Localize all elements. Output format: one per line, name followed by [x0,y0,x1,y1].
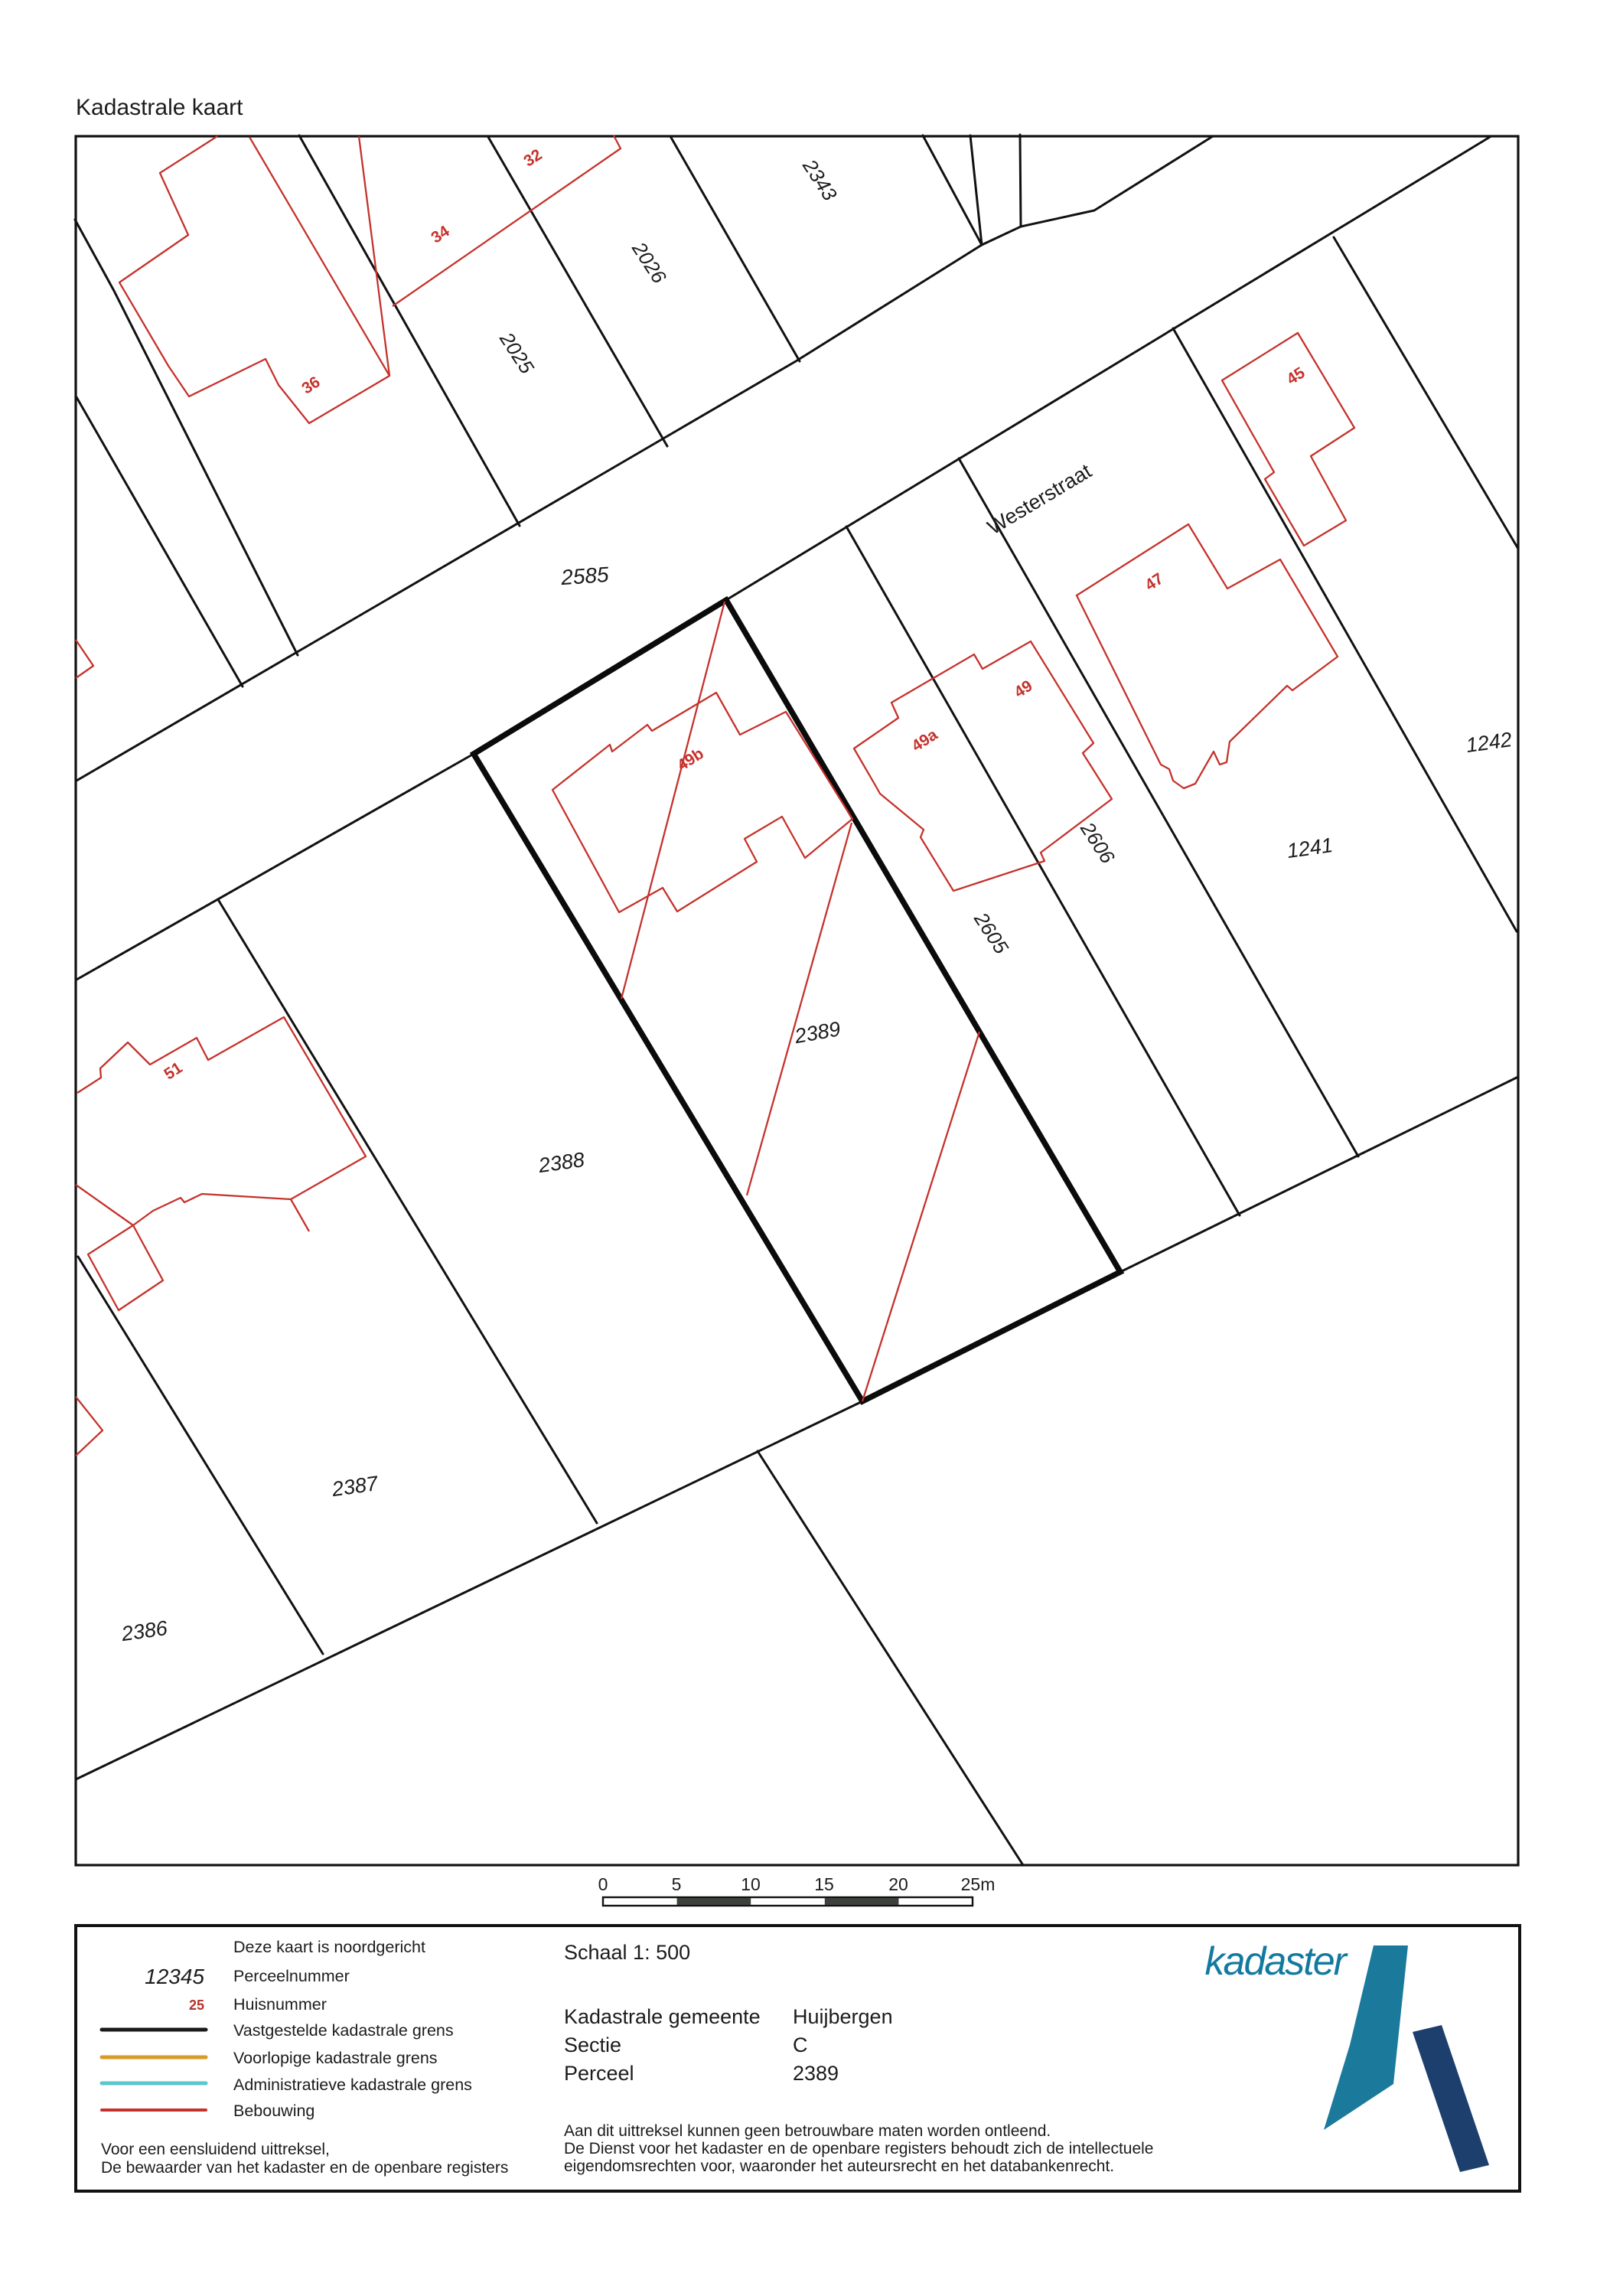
svg-text:Bebouwing: Bebouwing [233,2102,314,2120]
svg-text:Kadastrale kaart: Kadastrale kaart [76,95,243,120]
svg-text:25: 25 [189,1998,204,2013]
svg-text:51: 51 [161,1058,185,1083]
svg-text:49: 49 [1011,677,1035,702]
svg-text:32: 32 [520,146,545,171]
svg-text:1242: 1242 [1465,728,1514,757]
svg-text:Sectie: Sectie [564,2033,621,2056]
svg-text:47: 47 [1142,570,1166,595]
svg-text:1241: 1241 [1286,833,1335,863]
svg-text:2605: 2605 [970,908,1014,958]
svg-text:Voorlopige kadastrale grens: Voorlopige kadastrale grens [233,2049,438,2067]
svg-text:Kadastrale gemeente: Kadastrale gemeente [564,2005,761,2028]
svg-text:kadaster: kadaster [1205,1939,1349,1984]
svg-text:Perceelnummer: Perceelnummer [233,1967,350,1985]
svg-text:5: 5 [672,1874,682,1894]
svg-text:Vastgestelde kadastrale grens: Vastgestelde kadastrale grens [233,2021,454,2040]
svg-text:2388: 2388 [536,1148,586,1177]
svg-text:Huisnummer: Huisnummer [233,1995,327,2014]
svg-text:49b: 49b [674,745,707,775]
svg-text:C: C [793,2033,808,2056]
svg-text:Schaal 1: 500: Schaal 1: 500 [564,1941,690,1964]
svg-text:25m: 25m [961,1874,996,1894]
svg-text:Voor een eensluidend uittrekse: Voor een eensluidend uittreksel, [101,2141,330,2158]
svg-text:49a: 49a [909,726,941,755]
svg-text:2386: 2386 [119,1616,170,1645]
svg-text:15: 15 [814,1874,834,1894]
svg-text:45: 45 [1283,364,1308,388]
svg-text:eigendomsrechten voor, waarond: eigendomsrechten voor, waaronder het aut… [564,2157,1114,2175]
svg-text:Huijbergen: Huijbergen [793,2005,893,2028]
svg-text:De bewaarder van het kadaster: De bewaarder van het kadaster en de open… [101,2159,508,2177]
svg-text:2343: 2343 [798,155,842,205]
svg-text:2606: 2606 [1076,817,1120,868]
svg-text:De Dienst voor het kadaster en: De Dienst voor het kadaster en de openba… [564,2140,1153,2157]
svg-text:2585: 2585 [559,563,610,589]
svg-text:10: 10 [741,1874,761,1894]
svg-text:36: 36 [298,373,323,398]
svg-text:Westerstraat: Westerstraat [983,459,1096,540]
svg-text:2389: 2389 [792,1017,842,1048]
svg-text:2389: 2389 [793,2062,839,2085]
svg-text:2387: 2387 [330,1472,380,1501]
svg-text:12345: 12345 [145,1965,204,1988]
svg-text:Deze kaart is noordgericht: Deze kaart is noordgericht [233,1938,425,1956]
svg-text:34: 34 [428,222,452,246]
svg-text:Aan dit uittreksel kunnen geen: Aan dit uittreksel kunnen geen betrouwba… [564,2122,1051,2140]
svg-text:2026: 2026 [627,237,672,288]
svg-text:0: 0 [598,1874,608,1894]
svg-text:2025: 2025 [495,328,539,378]
svg-text:Administratieve kadastrale gre: Administratieve kadastrale grens [233,2076,472,2094]
svg-text:20: 20 [888,1874,908,1894]
svg-text:Perceel: Perceel [564,2062,634,2085]
